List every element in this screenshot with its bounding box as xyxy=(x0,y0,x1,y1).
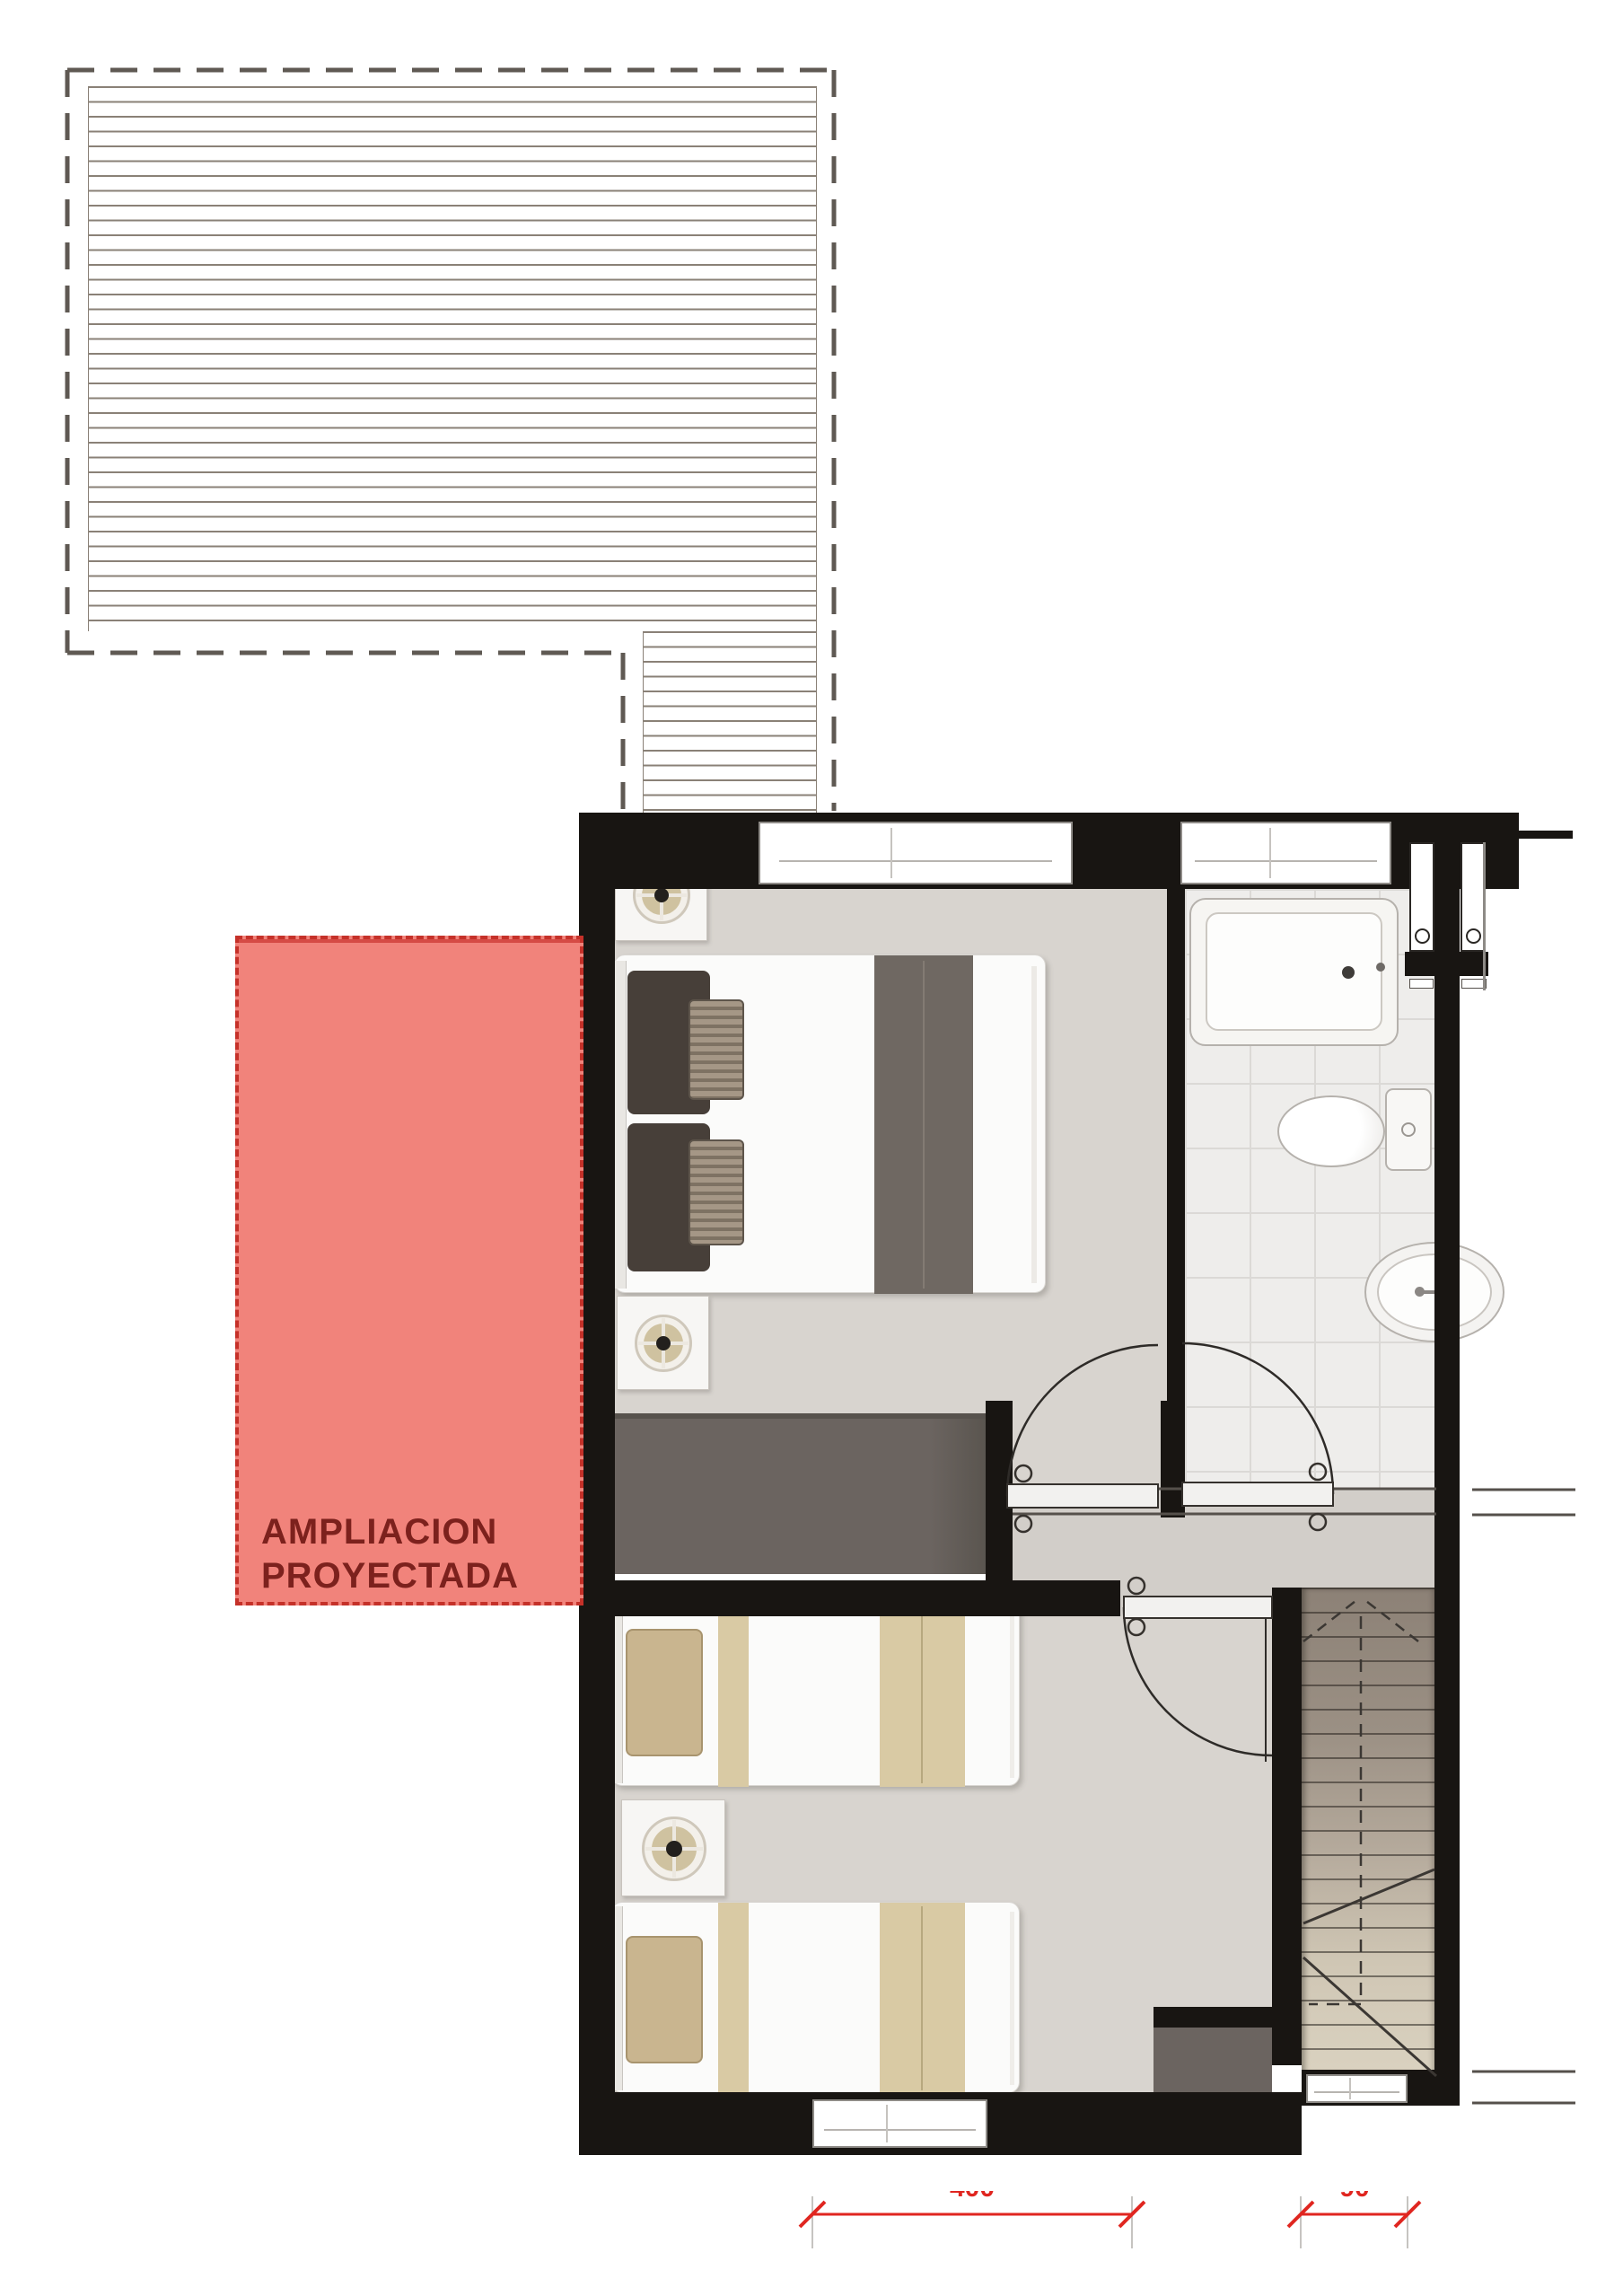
shaft-outer-line xyxy=(1483,842,1486,990)
wardrobe-bedroom1 xyxy=(615,1413,986,1574)
bathtub xyxy=(1189,898,1399,1046)
top-right-wall-tail xyxy=(1519,831,1573,839)
dimension-label-2: 90 xyxy=(1323,2191,1386,2204)
roof-hatch-column xyxy=(643,631,817,813)
lamp-center xyxy=(656,1336,671,1350)
bathtub-faucet xyxy=(1376,963,1385,972)
right-exterior-wall xyxy=(1434,889,1460,2106)
sink-faucet-dot xyxy=(1415,1287,1425,1297)
bathtub-drain xyxy=(1342,966,1355,979)
stripe-seam xyxy=(921,1906,923,2090)
nightstand-3 xyxy=(621,1799,725,1896)
pipe-slot-right xyxy=(1460,842,1486,952)
blanket-stripe-2 xyxy=(880,1903,965,2094)
foot-edge xyxy=(1031,966,1037,1283)
headboard xyxy=(615,961,627,1289)
left-exterior-wall xyxy=(579,813,615,2155)
bedroom1-window xyxy=(759,822,1073,884)
foot-edge xyxy=(1010,1605,1014,1778)
bedroom1-south-wall xyxy=(615,1580,1120,1616)
expansion-label: AMPLIACION PROYECTADA xyxy=(261,1510,566,1598)
nightstand-2 xyxy=(617,1296,709,1390)
double-bed xyxy=(614,954,1046,1293)
expansion-overlay: AMPLIACION PROYECTADA xyxy=(235,936,583,1605)
stair-side-wall xyxy=(1272,1588,1302,2065)
single-bed-2 xyxy=(611,1902,1020,2093)
stripe-seam xyxy=(921,1599,923,1783)
dimension-label-1: 400 xyxy=(932,2191,1013,2204)
expansion-label-line1: AMPLIACION xyxy=(261,1510,566,1554)
blanket-stripe-2 xyxy=(880,1596,965,1787)
hall-center-wall xyxy=(1161,1401,1185,1517)
runner-seam xyxy=(923,961,925,1289)
floor-plan-sheet: AMPLIACION PROYECTADA xyxy=(0,0,1614,2296)
pillow-striped-1 xyxy=(689,999,744,1100)
pillow-tan xyxy=(626,1629,703,1756)
closet-top-wall xyxy=(1153,2007,1272,2028)
pillow-striped-2 xyxy=(689,1139,744,1245)
pipe-icon xyxy=(1466,928,1481,944)
foot-edge xyxy=(1010,1912,1014,2085)
shaft-sill-left xyxy=(1409,979,1434,989)
bedroom1-bath-divider-wall xyxy=(1167,889,1185,1401)
shaft-cross-wall xyxy=(1405,952,1488,976)
single-bed-1 xyxy=(611,1595,1020,1786)
lamp-center xyxy=(666,1841,682,1857)
bathtub-basin xyxy=(1206,912,1382,1031)
toilet-button xyxy=(1401,1122,1416,1137)
pipe-slot-left xyxy=(1409,842,1434,952)
dimension-ticks xyxy=(800,2202,1420,2227)
expansion-label-line2: PROYECTADA xyxy=(261,1554,566,1598)
lamp-center xyxy=(654,888,669,902)
blanket-stripe-1 xyxy=(718,1903,749,2094)
pipe-icon xyxy=(1415,928,1430,944)
toilet-bowl xyxy=(1277,1095,1385,1167)
duvet-runner xyxy=(874,955,973,1294)
staircase xyxy=(1302,1588,1436,2106)
stair-window xyxy=(1306,2074,1408,2103)
bathroom-window xyxy=(1180,822,1391,884)
toilet xyxy=(1277,1088,1439,1174)
blanket-stripe-1 xyxy=(718,1596,749,1787)
pillow-tan xyxy=(626,1936,703,2063)
roof-hatch-main xyxy=(88,86,817,631)
bedroom2-window xyxy=(812,2099,987,2148)
